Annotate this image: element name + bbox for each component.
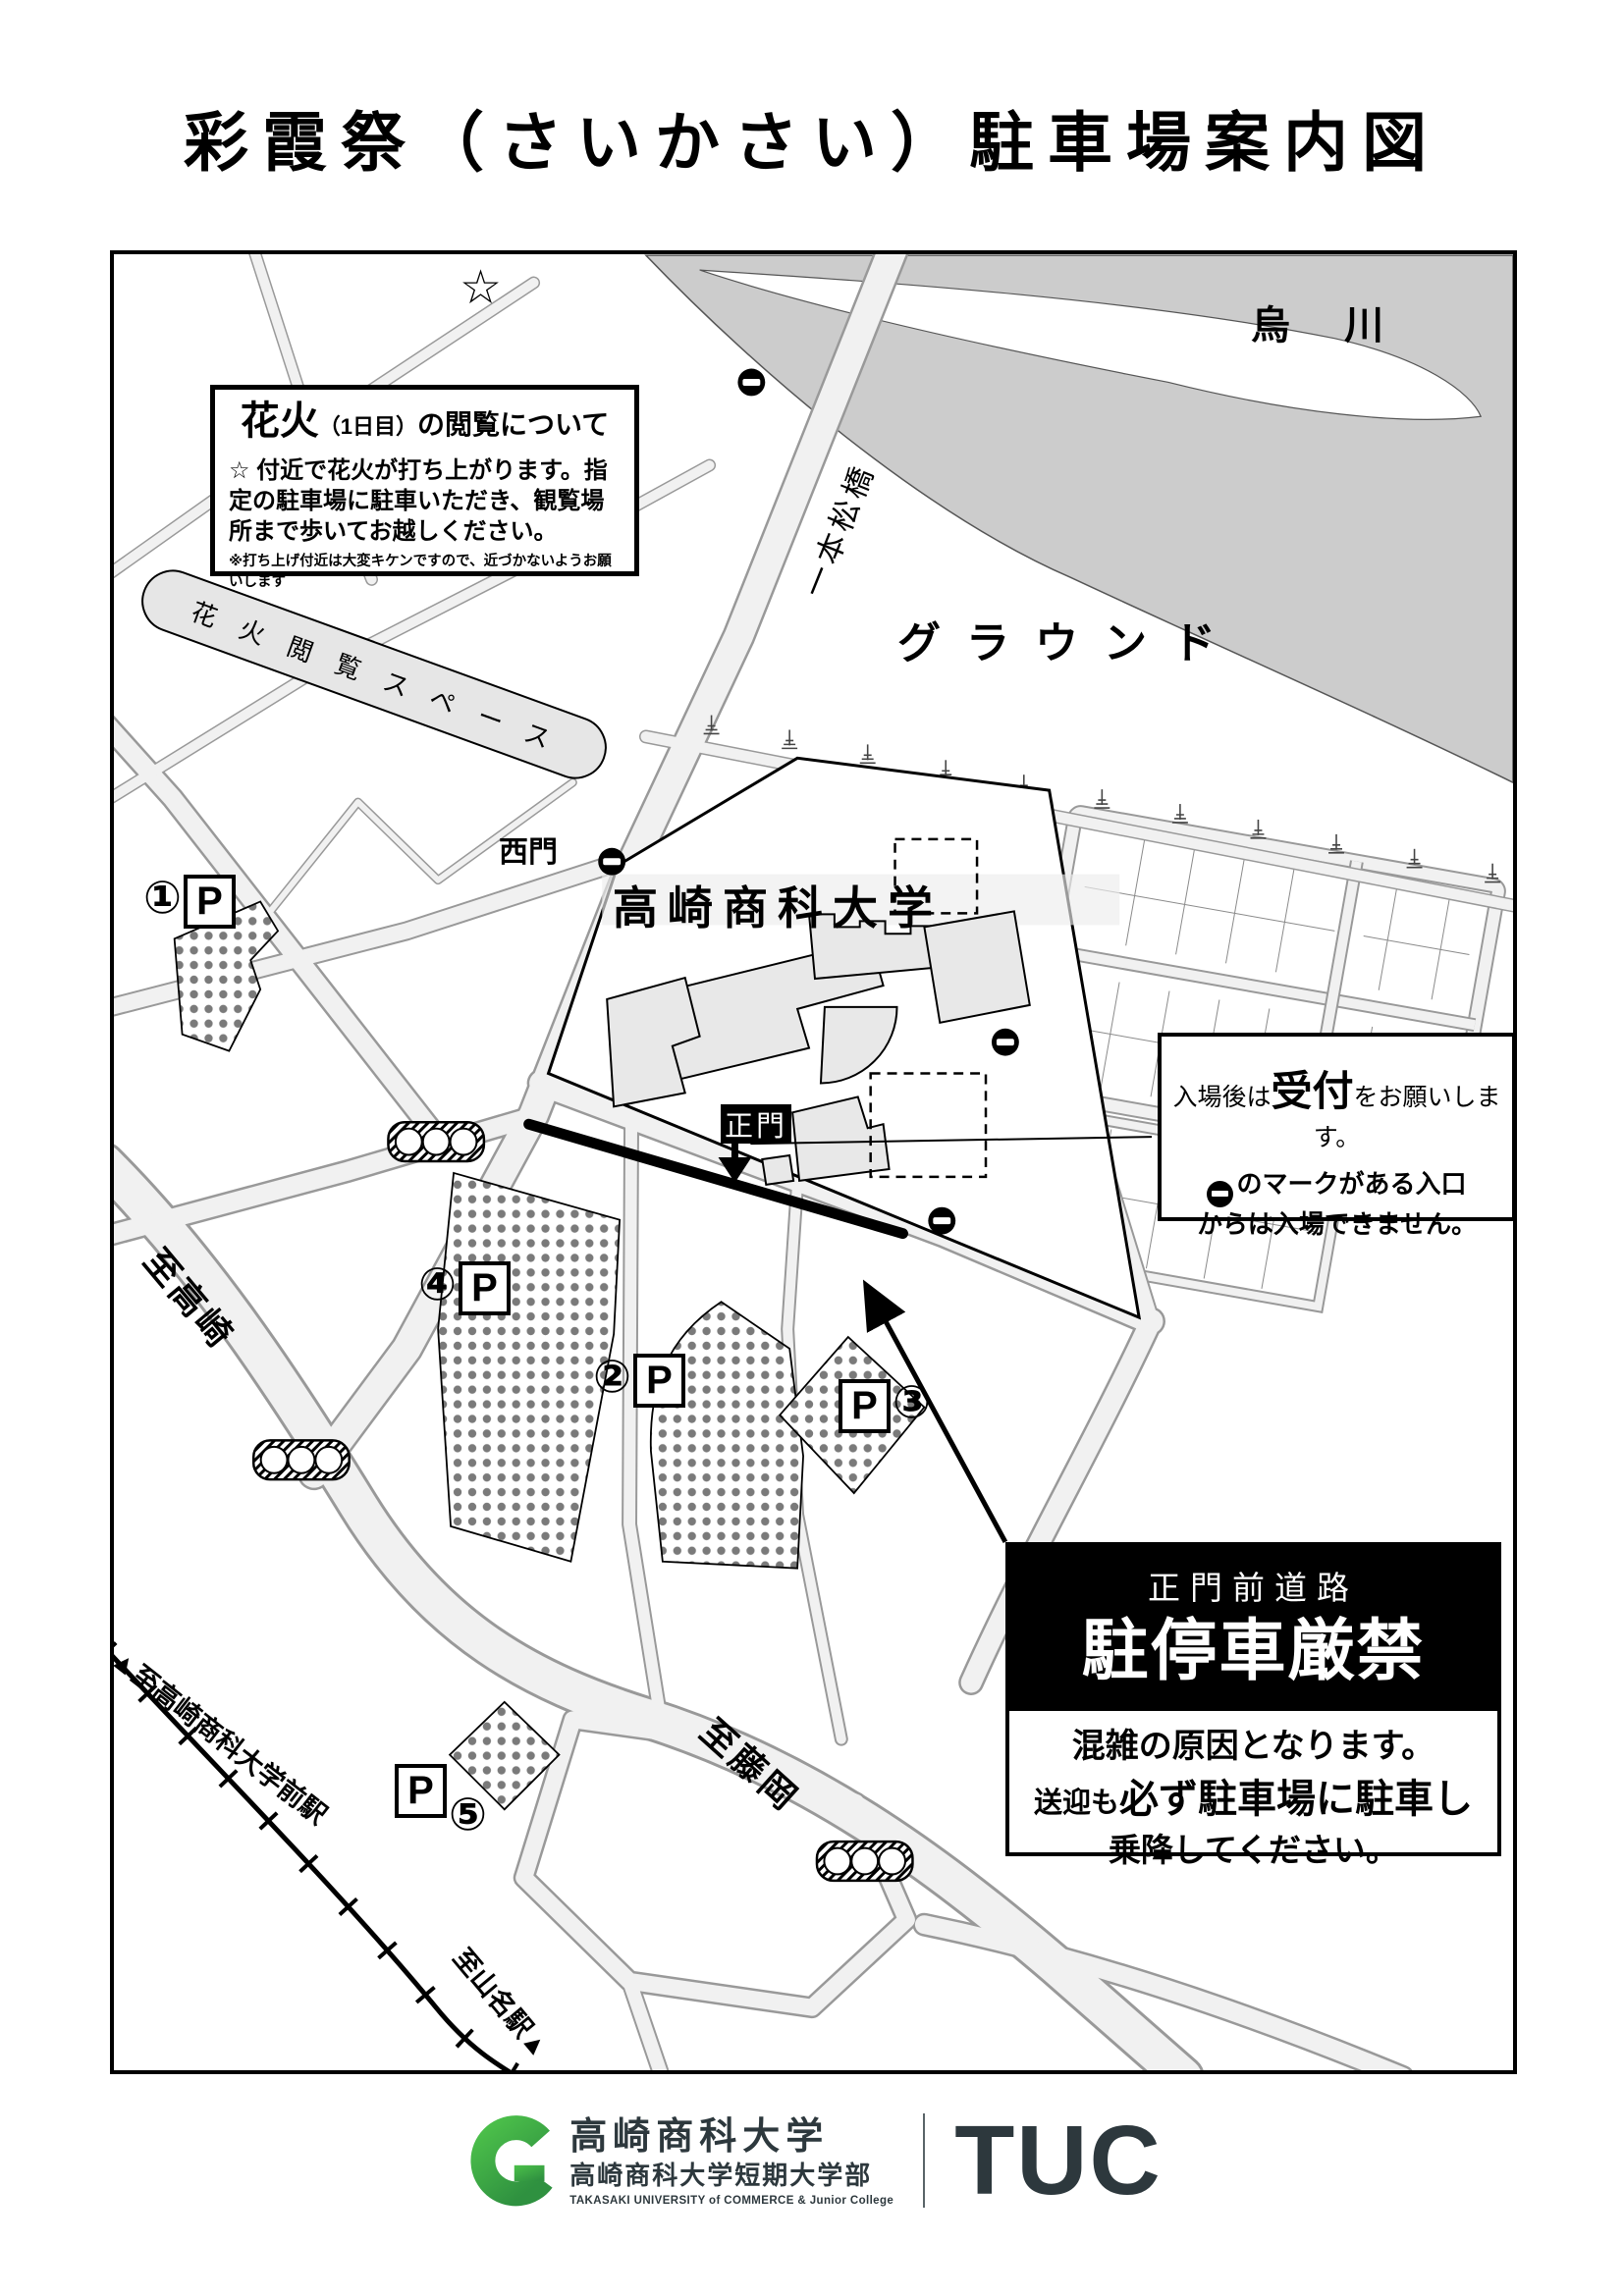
fireworks-info-body: ☆ 付近で花火が打ち上がります。指定の駐車場に駐車いただき、観覧場所まで歩いてお…: [215, 452, 634, 547]
parking-4-p-icon: P: [459, 1261, 511, 1315]
warning-header: 正門前道路 駐停車厳禁: [1009, 1546, 1497, 1711]
fireworks-info-note: ※打ち上げ付近は大変キケンですので、近づかないようお願いします: [215, 547, 634, 591]
parking-5-p-icon: P: [395, 1764, 447, 1818]
ground-label: グラウンド: [897, 608, 1241, 670]
parking-lot-2-area: [651, 1302, 803, 1568]
parking-1-p-icon: P: [184, 875, 236, 929]
west-gate-label: 西門: [499, 828, 558, 871]
fireworks-title-day: （1日目）: [319, 414, 417, 439]
warning-body-3: 乗降してください。: [1009, 1824, 1497, 1871]
reception-line-3: からは入場できません。: [1162, 1207, 1512, 1241]
parking-3-label: P ③: [837, 1379, 931, 1433]
parking-1-label: ① P: [143, 875, 238, 929]
parking-5-label: P ⑤: [393, 1764, 487, 1837]
fireworks-info-title: 花火（1日目）の閲覧について: [215, 400, 634, 452]
university-label: 高崎商科大学: [613, 873, 943, 937]
parking-2-p-icon: P: [633, 1354, 685, 1408]
warning-ban-text: 駐停車厳禁: [1009, 1609, 1497, 1693]
footer-junior-college: 高崎商科大学短期大学部: [569, 2159, 893, 2192]
parking-4-number: ④: [418, 1261, 457, 1307]
footer-university-name: 高崎商科大学: [569, 2115, 893, 2159]
parking-3-p-icon: P: [839, 1379, 891, 1433]
parking-2-number: ②: [593, 1354, 631, 1399]
parking-2-label: ② P: [593, 1354, 687, 1408]
footer-english-name: TAKASAKI UNIVERSITY of COMMERCE & Junior…: [569, 2195, 893, 2207]
fireworks-star-icon: ☆: [460, 260, 502, 315]
parking-3-number: ③: [893, 1379, 931, 1424]
no-entry-icon: [1207, 1181, 1233, 1207]
parking-guide-page: 彩霞祭（さいかさい）駐車場案内図: [0, 0, 1624, 2296]
parking-1-number: ①: [143, 875, 182, 920]
parking-5-number: ⑤: [449, 1791, 487, 1837]
map-area: ☆ 烏 川 一本松橋 グラウンド 西門 高崎商科大学 花火（1日目）の閲覧につい…: [110, 250, 1517, 2074]
parking-4-label: ④ P: [418, 1261, 513, 1315]
footer: 高崎商科大学 高崎商科大学短期大学部 TAKASAKI UNIVERSITY o…: [0, 2109, 1624, 2213]
river-label: 烏 川: [1251, 294, 1405, 350]
university-logo-text: 高崎商科大学 高崎商科大学短期大学部 TAKASAKI UNIVERSITY o…: [569, 2115, 893, 2207]
fireworks-info-box: 花火（1日目）の閲覧について ☆ 付近で花火が打ち上がります。指定の駐車場に駐車…: [210, 385, 639, 576]
reception-line2-text: のマークがある入口: [1236, 1169, 1466, 1199]
warning-body-2: 送迎も必ず駐車場に駐車し: [1009, 1767, 1497, 1824]
page-title: 彩霞祭（さいかさい）駐車場案内図: [0, 90, 1624, 185]
warning-body2-big: 必ず駐車場に駐車し: [1119, 1778, 1473, 1821]
footer-divider: [923, 2113, 925, 2208]
tuc-logo: TUC: [954, 2111, 1163, 2210]
university-logo-icon: [461, 2109, 556, 2213]
reception-info-box: 入場後は受付をお願いします。 のマークがある入口 からは入場できません。: [1158, 1033, 1516, 1221]
warning-body2-pre: 送迎も: [1034, 1788, 1119, 1819]
reception-line1-big: 受付: [1271, 1068, 1353, 1114]
reception-line1-pre: 入場後は: [1172, 1084, 1271, 1111]
fireworks-title-rest: の閲覧について: [417, 409, 609, 440]
fireworks-title-main: 花火: [241, 400, 319, 443]
main-gate-label: 正門: [721, 1104, 791, 1144]
reception-line-2: のマークがある入口: [1162, 1167, 1512, 1207]
no-parking-warning-box: 正門前道路 駐停車厳禁 混雑の原因となります。 送迎も必ず駐車場に駐車し 乗降し…: [1005, 1542, 1501, 1856]
warning-road-name: 正門前道路: [1009, 1546, 1497, 1609]
warning-body-1: 混雑の原因となります。: [1009, 1719, 1497, 1767]
reception-line-1: 入場後は受付をお願いします。: [1162, 1058, 1512, 1153]
